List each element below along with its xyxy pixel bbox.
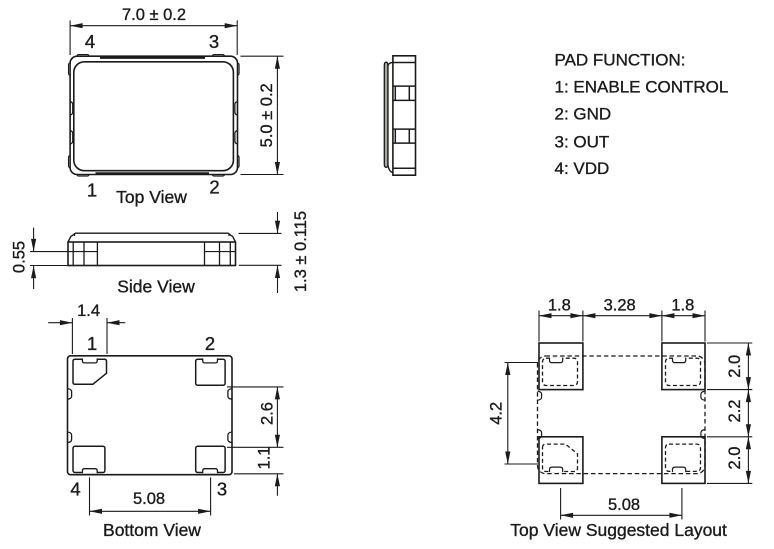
svg-text:2.2: 2.2 [726,400,744,423]
svg-text:2.0: 2.0 [726,355,744,378]
svg-text:3: OUT: 3: OUT [555,133,610,152]
svg-text:1.1: 1.1 [256,447,274,470]
svg-text:Bottom View: Bottom View [103,520,201,540]
svg-text:2: 2 [205,333,215,354]
svg-text:1.3 ± 0.115: 1.3 ± 0.115 [292,211,310,292]
svg-text:1.8: 1.8 [671,297,694,315]
svg-text:1: 1 [87,333,97,354]
svg-text:3: 3 [217,479,227,500]
svg-text:Side View: Side View [117,277,195,297]
svg-text:2: 2 [209,177,219,198]
svg-text:2.0: 2.0 [726,447,744,470]
svg-text:4: 4 [85,31,95,52]
svg-text:4: VDD: 4: VDD [555,159,610,178]
svg-text:2: GND: 2: GND [555,105,612,124]
svg-text:4: 4 [70,479,80,500]
svg-text:3.28: 3.28 [604,297,636,315]
svg-text:7.0 ± 0.2: 7.0 ± 0.2 [122,6,186,24]
svg-text:1: 1 [87,180,97,201]
svg-text:Top View: Top View [116,187,187,207]
svg-text:1: ENABLE CONTROL: 1: ENABLE CONTROL [555,78,729,97]
svg-text:3: 3 [209,31,219,52]
svg-text:Top View Suggested Layout: Top View Suggested Layout [510,520,727,540]
svg-text:5.08: 5.08 [133,490,165,508]
svg-text:5.08: 5.08 [608,496,640,514]
svg-text:5.0 ± 0.2: 5.0 ± 0.2 [258,83,276,147]
svg-text:4.2: 4.2 [488,402,506,425]
svg-text:PAD FUNCTION:: PAD FUNCTION: [555,51,686,70]
svg-text:2.6: 2.6 [259,402,277,425]
svg-text:1.4: 1.4 [77,302,100,320]
svg-text:1.8: 1.8 [548,297,571,315]
svg-text:0.55: 0.55 [11,241,29,273]
